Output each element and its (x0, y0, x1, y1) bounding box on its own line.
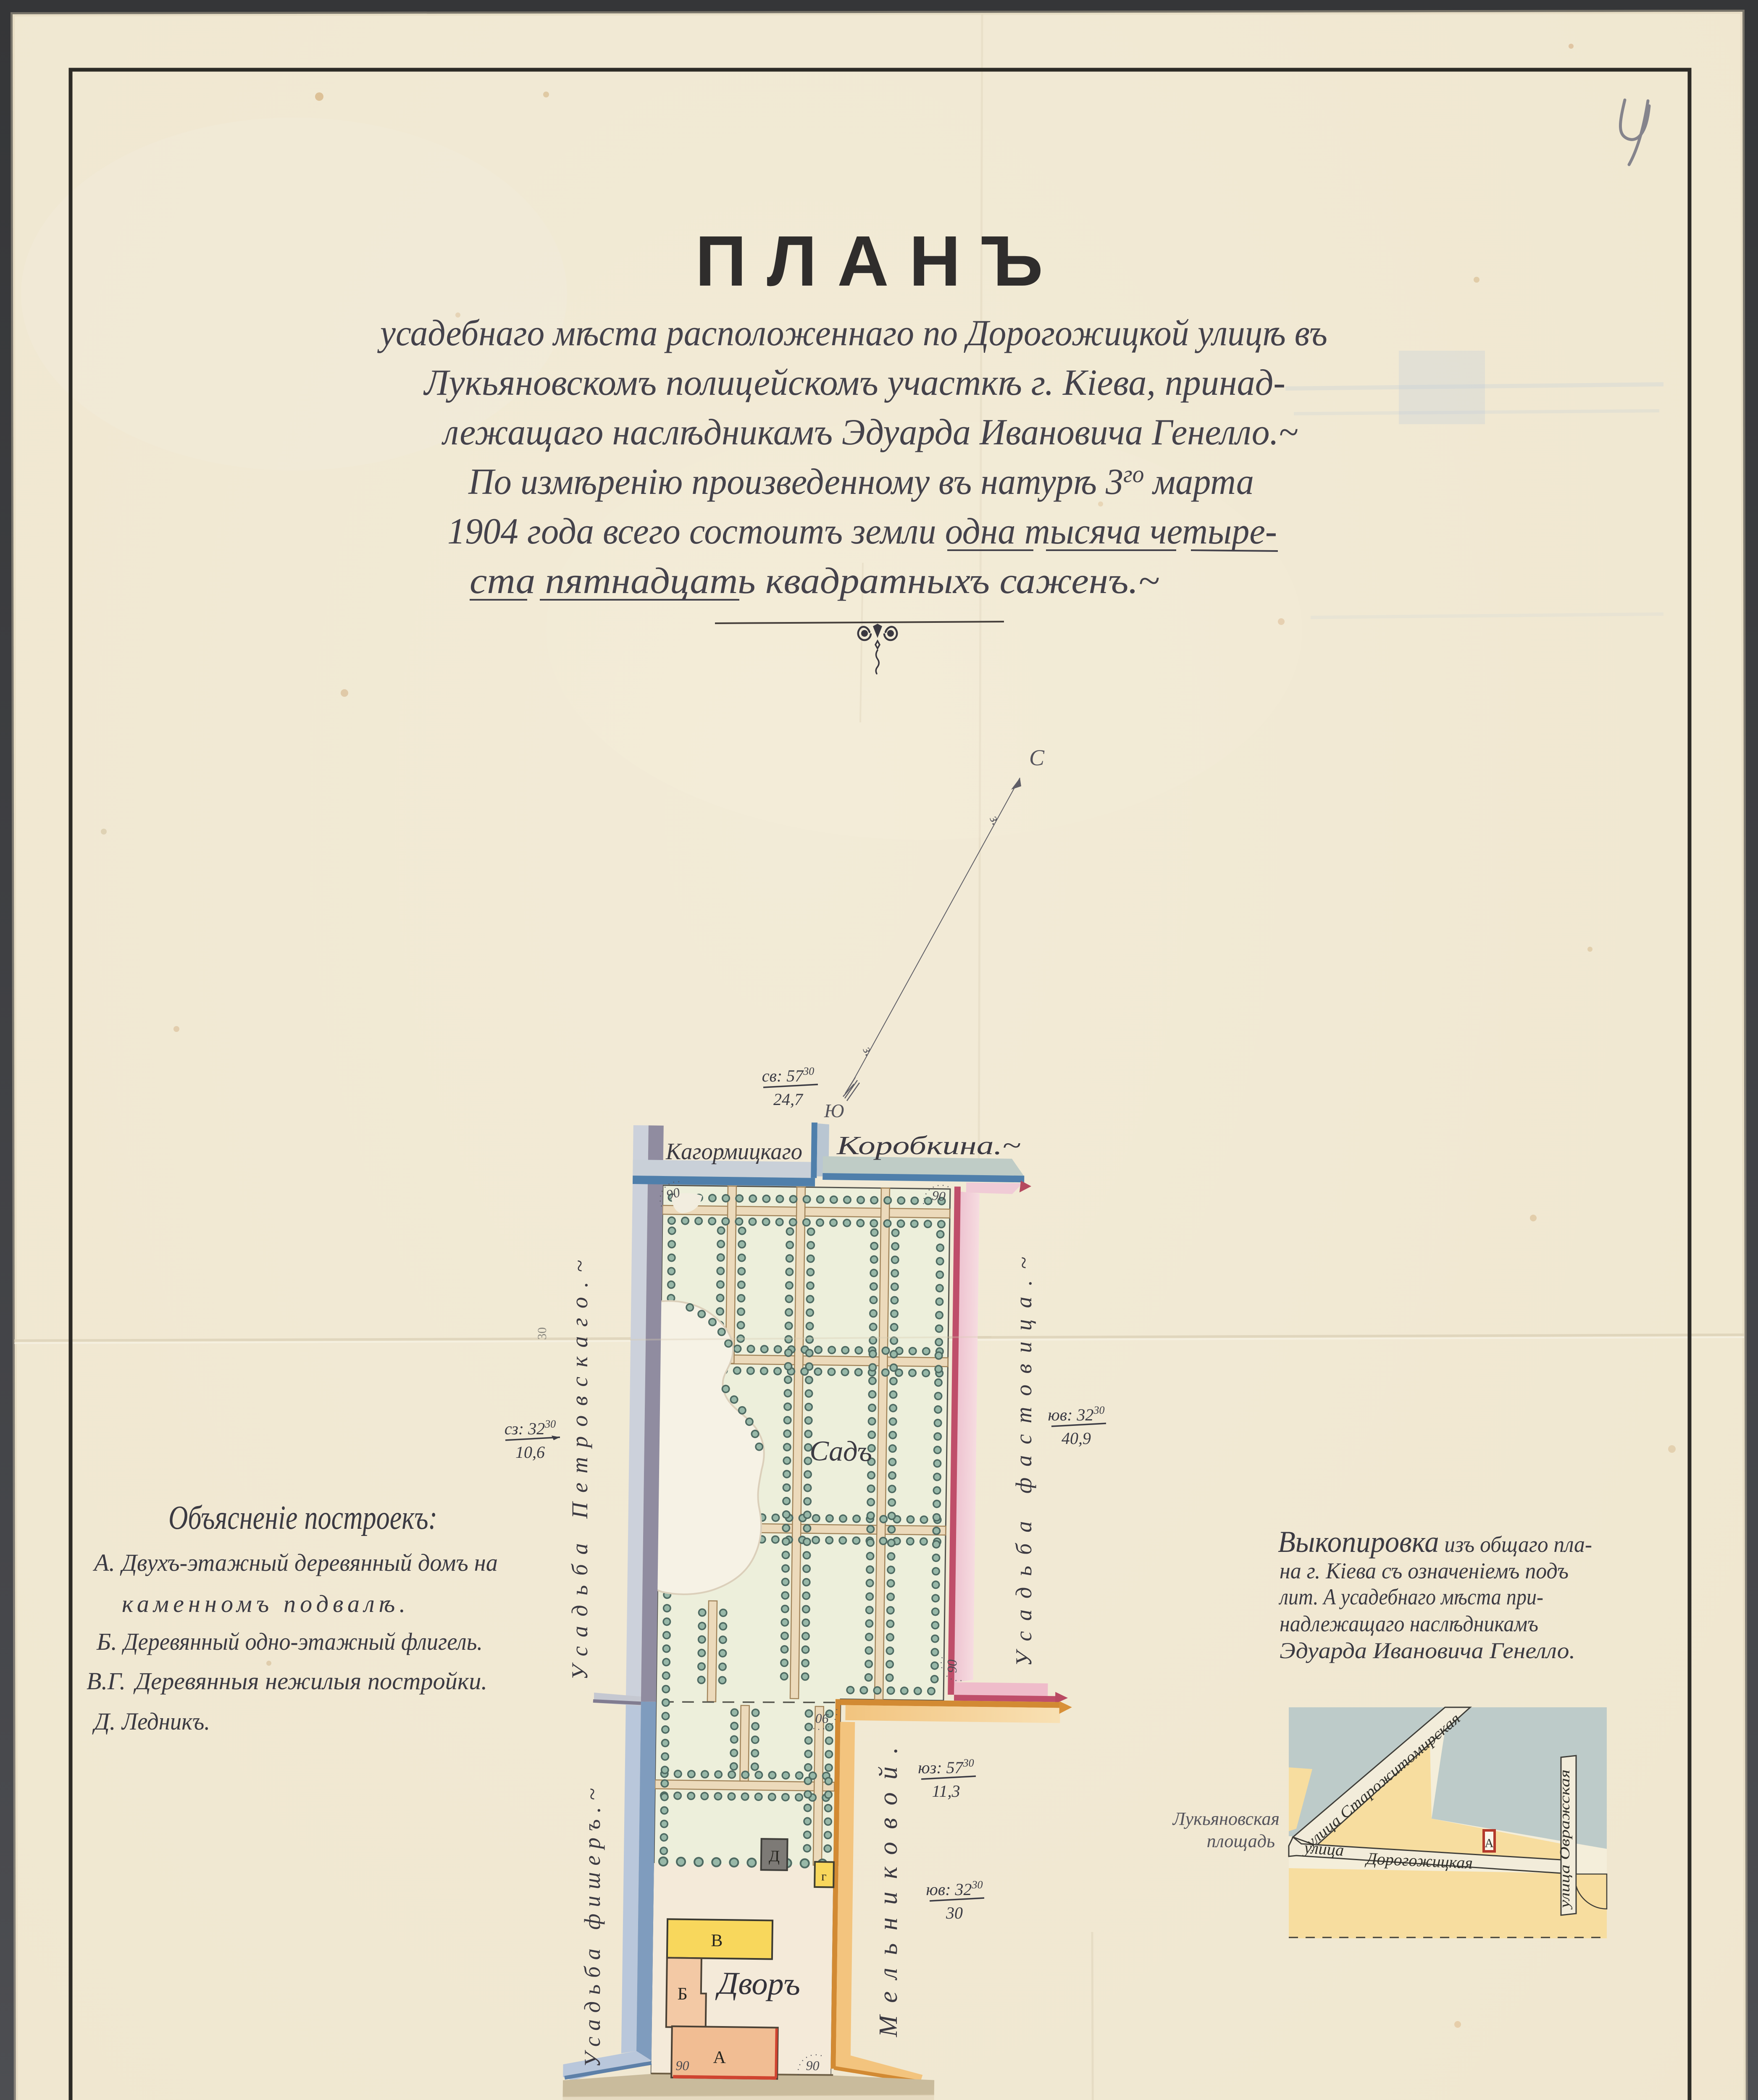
svg-text:площадь: площадь (1207, 1831, 1275, 1851)
svg-text:30: 30 (946, 1903, 963, 1922)
svg-text:г: г (821, 1869, 827, 1883)
svg-text:А: А (1485, 1836, 1494, 1850)
svg-text:ПЛАНЪ: ПЛАНЪ (695, 221, 1082, 301)
svg-text:Эдуарда Ивановича Генелло.: Эдуарда Ивановича Генелло. (1280, 1638, 1575, 1663)
svg-text:Б.: Б. (96, 1628, 117, 1655)
svg-text:24,7: 24,7 (773, 1090, 804, 1109)
svg-text:90: 90 (931, 1188, 946, 1204)
svg-text:А.: А. (92, 1549, 115, 1576)
svg-text:30: 30 (535, 1327, 549, 1340)
svg-text:С: С (1029, 745, 1045, 770)
svg-text:А: А (713, 2048, 726, 2067)
svg-text:Двухъ-этажный деревянный домъ: Двухъ-этажный деревянный домъ на (120, 1549, 498, 1576)
svg-text:Деревянныя нежилыя постройки.: Деревянныя нежилыя постройки. (133, 1667, 487, 1695)
svg-text:Объясненіе построекъ:: Объясненіе построекъ: (168, 1499, 437, 1536)
svg-text:лит. А усадебнаго мѣста при-: лит. А усадебнаго мѣста при- (1278, 1584, 1543, 1609)
svg-text:на г. Кіева съ означеніемъ под: на г. Кіева съ означеніемъ подъ (1280, 1558, 1569, 1583)
svg-text:Садъ: Садъ (809, 1435, 872, 1467)
svg-text:40,9: 40,9 (1062, 1429, 1091, 1448)
svg-text:В.Г.: В.Г. (87, 1667, 126, 1695)
svg-text:надлежащаго наслѣдникамъ: надлежащаго наслѣдникамъ (1280, 1611, 1538, 1636)
svg-text:10,6: 10,6 (515, 1443, 545, 1462)
svg-text:90: 90 (675, 2058, 689, 2073)
svg-text:90: 90 (815, 1711, 829, 1726)
svg-text:улица: улица (1302, 1838, 1345, 1860)
svg-text:1904 года всего состоитъ земли: 1904 года всего состоитъ земли одна тыся… (447, 511, 1277, 552)
svg-text:11,3: 11,3 (932, 1782, 960, 1801)
svg-text:усадебнаго мѣста расположеннаг: усадебнаго мѣста расположеннаго по Дорог… (377, 313, 1327, 354)
svg-text:Б: Б (677, 1984, 688, 2004)
svg-text:Коробкина.~: Коробкина.~ (836, 1131, 1021, 1160)
svg-text:Д.: Д. (92, 1708, 116, 1735)
svg-text:Д: Д (769, 1847, 780, 1865)
svg-text:лежащаго наслѣдникамъ Эдуарда: лежащаго наслѣдникамъ Эдуарда Ивановича … (441, 412, 1298, 453)
svg-text:Лукьяновская: Лукьяновская (1172, 1809, 1280, 1829)
svg-text:Деревянный одно-этажный флигел: Деревянный одно-этажный флигель. (121, 1628, 483, 1655)
svg-text:90: 90 (806, 2058, 819, 2073)
svg-text:Усадьба фишеръ.~: Усадьба фишеръ.~ (580, 1788, 605, 2068)
svg-text:90: 90 (944, 1659, 959, 1673)
svg-text:Ю: Ю (824, 1100, 844, 1121)
svg-text:Ледникъ.: Ледникъ. (121, 1708, 210, 1735)
svg-text:Кагормицкаго: Кагормицкаго (665, 1139, 802, 1165)
svg-text:В: В (711, 1931, 723, 1950)
svg-text:Лукьяновскомъ полицейскомъ уча: Лукьяновскомъ полицейскомъ участкѣ г. Кі… (423, 362, 1285, 403)
svg-text:ста пятнадцать квадратныхъ саж: ста пятнадцать квадратныхъ саженъ.~ (470, 561, 1159, 601)
svg-text:Дворъ: Дворъ (715, 1966, 801, 2002)
svg-text:улица Овражская: улица Овражская (1557, 1769, 1573, 1910)
